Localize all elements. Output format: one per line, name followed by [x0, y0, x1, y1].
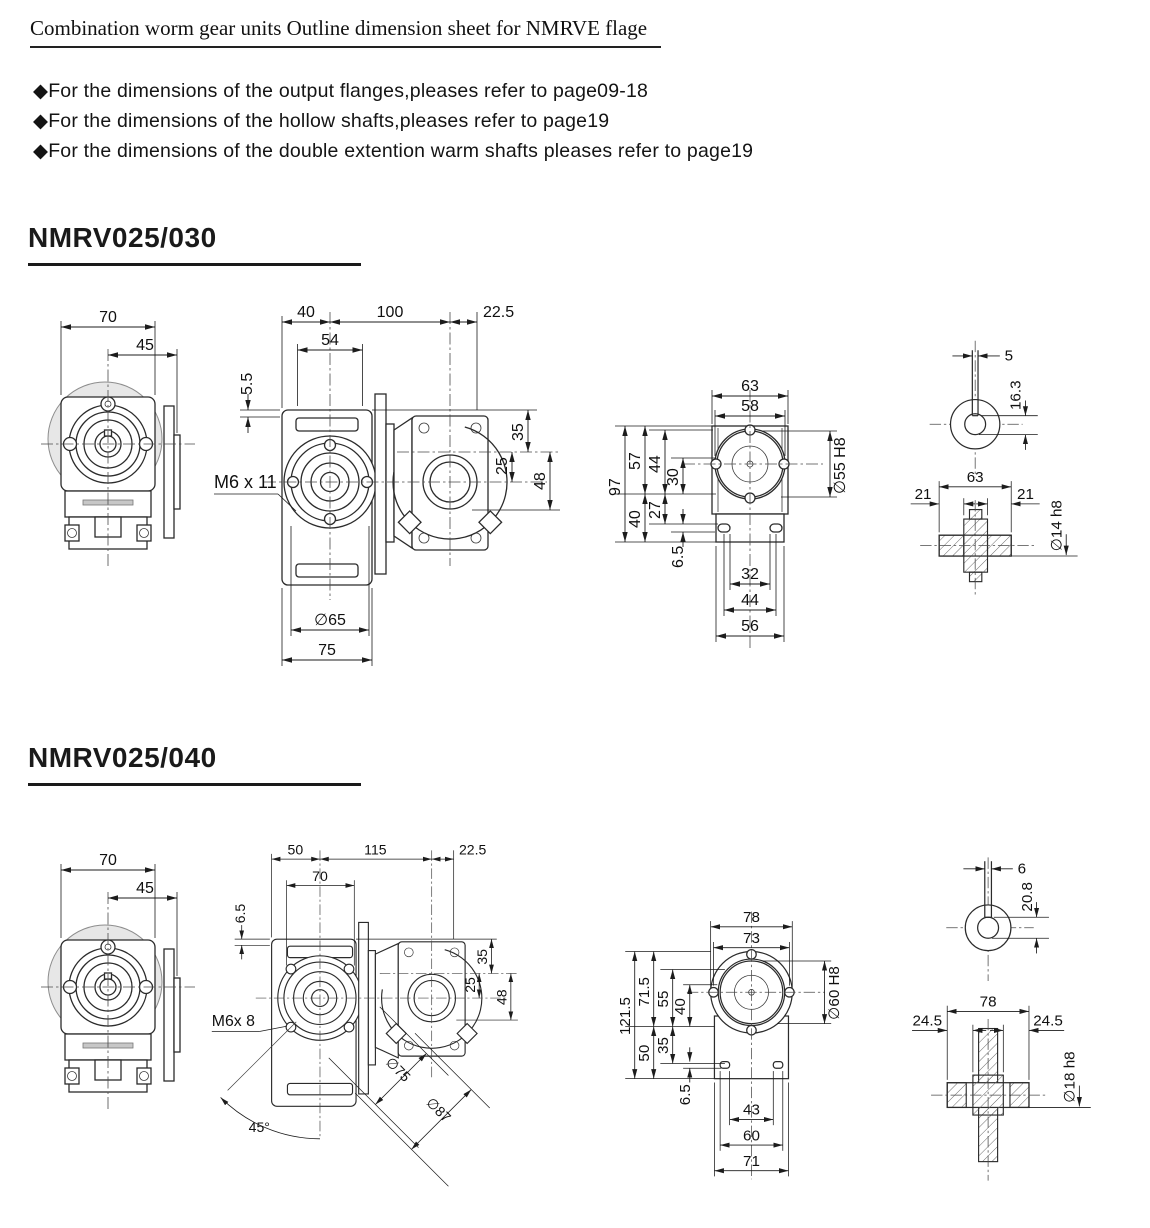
s2-front-dim-center-to-flange: 45: [136, 880, 154, 897]
s2-side-dim-worm-axis-to-base: 48: [493, 989, 509, 1005]
s1-rear-view-drawing: 63 58 97 57 40 44 27 30 6.: [585, 298, 880, 663]
s1-shaft-view-drawing: 5 16.3 63 21 21: [880, 318, 1132, 612]
s2-rear-dim-bolt-to-axis: 55: [655, 991, 672, 1008]
s1-front-dim-overall-width: 70: [99, 309, 117, 326]
s2-side-dim-top-lip: 6.5: [232, 904, 248, 924]
s1-side-dim-top-to-worm-axis: 35: [510, 423, 527, 441]
s1-side-dim-bolt-span: 54: [321, 332, 339, 349]
s2-front-body: [41, 892, 195, 1110]
s1-rear-dim-upper-height: 57: [627, 452, 644, 470]
s2-shaft-dim-length: 78: [980, 994, 997, 1011]
s1-shaft-dim-ext-right: 21: [1017, 486, 1034, 503]
s1-side-view-drawing: 40 100 22.5 54 5.5 M6 x 11 35 25 48: [212, 298, 577, 703]
s2-rear-dim-axis-to-near: 40: [672, 998, 689, 1015]
s1-rear-dim-bore: ∅55 H8: [832, 437, 849, 494]
s1-double-ext-shaft: 63 21 21 ∅14 h8: [911, 469, 1078, 595]
s1-side-tap-label: M6 x 11: [214, 472, 277, 492]
s2-rear-dim-lower-height: 50: [636, 1045, 653, 1062]
s2-shaft-dim-ext-right: 24.5: [1033, 1013, 1063, 1030]
note-hollow-shafts: ◆For the dimensions of the hollow shafts…: [33, 106, 753, 136]
s1-side-dim-center-distance: 25: [494, 457, 511, 475]
s2-side-dim-shaft-overhang: 22.5: [459, 842, 487, 858]
section1-heading: NMRV025/030: [28, 222, 361, 266]
s1-side-dim-center-to-motor: 100: [377, 304, 404, 321]
s2-shaft-dim-key-width: 6: [1018, 861, 1026, 878]
s2-side-view-drawing: 50 115 22.5 70 6.5 M6x 8 35 25 48: [208, 838, 534, 1225]
s2-front-dim-overall-width: 70: [99, 852, 117, 869]
s1-front-dim-center-to-flange: 45: [136, 337, 154, 354]
s2-shaft-view-drawing: 6 20.8 78 24.5 24.5: [893, 846, 1145, 1193]
s2-rear-dim-bore: ∅60 H8: [826, 966, 843, 1020]
s2-side-dim-center-distance: 25: [462, 977, 478, 993]
s2-rear-dim-axis-to-foot: 35: [655, 1037, 672, 1054]
notes-list: ◆For the dimensions of the output flange…: [33, 76, 753, 166]
sheet-title: Combination worm gear units Outline dime…: [30, 16, 661, 48]
s2-shaft-dim-ext-left: 24.5: [912, 1013, 942, 1030]
s2-side-dim-flange-angle: 45°: [249, 1119, 270, 1135]
s2-side-dim-edge-to-center: 50: [288, 842, 304, 858]
s1-front-view-drawing: 70 45: [25, 305, 225, 577]
s2-side-tap-label: M6x 8: [212, 1013, 255, 1030]
s2-keyway-section: 6 20.8: [946, 857, 1049, 981]
s1-side-body: [264, 394, 560, 585]
s2-side-dim-bolt-span: 70: [312, 868, 328, 884]
s1-shaft-dim-length: 63: [967, 469, 984, 486]
s1-rear-dim-axis-to-foot: 27: [647, 501, 664, 519]
s1-shaft-dim-key-depth: 16.3: [1008, 380, 1025, 409]
s1-rear-dim-body-width: 56: [741, 618, 759, 635]
s2-rear-dim-slot-inner-span: 43: [743, 1102, 760, 1119]
s1-side-dim-shaft-overhang: 22.5: [483, 304, 514, 321]
s2-side-dim-flange-dia: ∅75: [383, 1054, 414, 1085]
s2-double-ext-shaft: 78 24.5 24.5 ∅18 h8: [912, 994, 1091, 1181]
s1-shaft-dim-ext-left: 21: [915, 486, 932, 503]
note-output-flanges: ◆For the dimensions of the output flange…: [33, 76, 753, 106]
s1-rear-dim-axis-to-near: 30: [665, 468, 682, 486]
s2-rear-dim-foot-slot: 6.5: [677, 1084, 694, 1105]
s1-shaft-dim-diameter: ∅14 h8: [1048, 500, 1065, 551]
s1-rear-dim-total-height: 97: [607, 478, 624, 496]
s1-side-dim-top-lip: 5.5: [239, 373, 256, 395]
dimension-sheet: Combination worm gear units Outline dime…: [0, 0, 1150, 1228]
s2-rear-dim-body-width: 71: [743, 1153, 760, 1170]
s1-keyway-section: 5 16.3: [930, 341, 1038, 478]
s2-rear-dim-flange-width: 78: [743, 909, 760, 926]
s1-rear-dim-foot-slot: 6.5: [670, 546, 687, 568]
s2-shaft-dim-key-depth: 20.8: [1019, 882, 1036, 912]
s1-shaft-dim-key-width: 5: [1005, 348, 1013, 365]
s2-side-dim-flange-outer-dia: ∅87: [423, 1094, 454, 1125]
s2-rear-dim-total-height: 121.5: [617, 997, 634, 1035]
s2-side-dim-center-to-motor: 115: [364, 842, 387, 858]
s1-rear-dim-bolt-width: 58: [741, 398, 759, 415]
s1-side-dim-flange-dia: ∅65: [314, 612, 346, 629]
s2-side-dim-top-to-worm-axis: 35: [474, 949, 490, 965]
s2-rear-dim-upper-height: 71.5: [636, 977, 653, 1007]
s2-rear-view-drawing: 78 73 121.5 71.5 50 55 35 40: [592, 845, 872, 1225]
s2-shaft-dim-diameter: ∅18 h8: [1062, 1051, 1079, 1102]
s1-front-body: [41, 349, 195, 567]
s1-rear-dim-lower-height: 40: [627, 510, 644, 528]
s1-side-dim-worm-axis-to-base: 48: [532, 472, 549, 490]
s1-rear-body: [683, 390, 823, 650]
note-double-extension: ◆For the dimensions of the double extent…: [33, 136, 753, 166]
s2-rear-dim-slot-center-span: 60: [743, 1127, 760, 1144]
s1-rear-dim-slot-center-span: 44: [741, 592, 759, 609]
s1-side-dim-body-width: 75: [318, 642, 336, 659]
s2-front-view-drawing: 70 45: [25, 848, 225, 1120]
s1-rear-dim-flange-width: 63: [741, 378, 759, 395]
s2-rear-dim-bolt-width: 73: [743, 930, 760, 947]
s1-rear-dim-slot-inner-span: 32: [741, 566, 759, 583]
s1-side-dim-edge-to-center: 40: [297, 304, 315, 321]
section2-heading: NMRV025/040: [28, 742, 361, 786]
s1-rear-dim-bolt-to-axis: 44: [647, 455, 664, 473]
